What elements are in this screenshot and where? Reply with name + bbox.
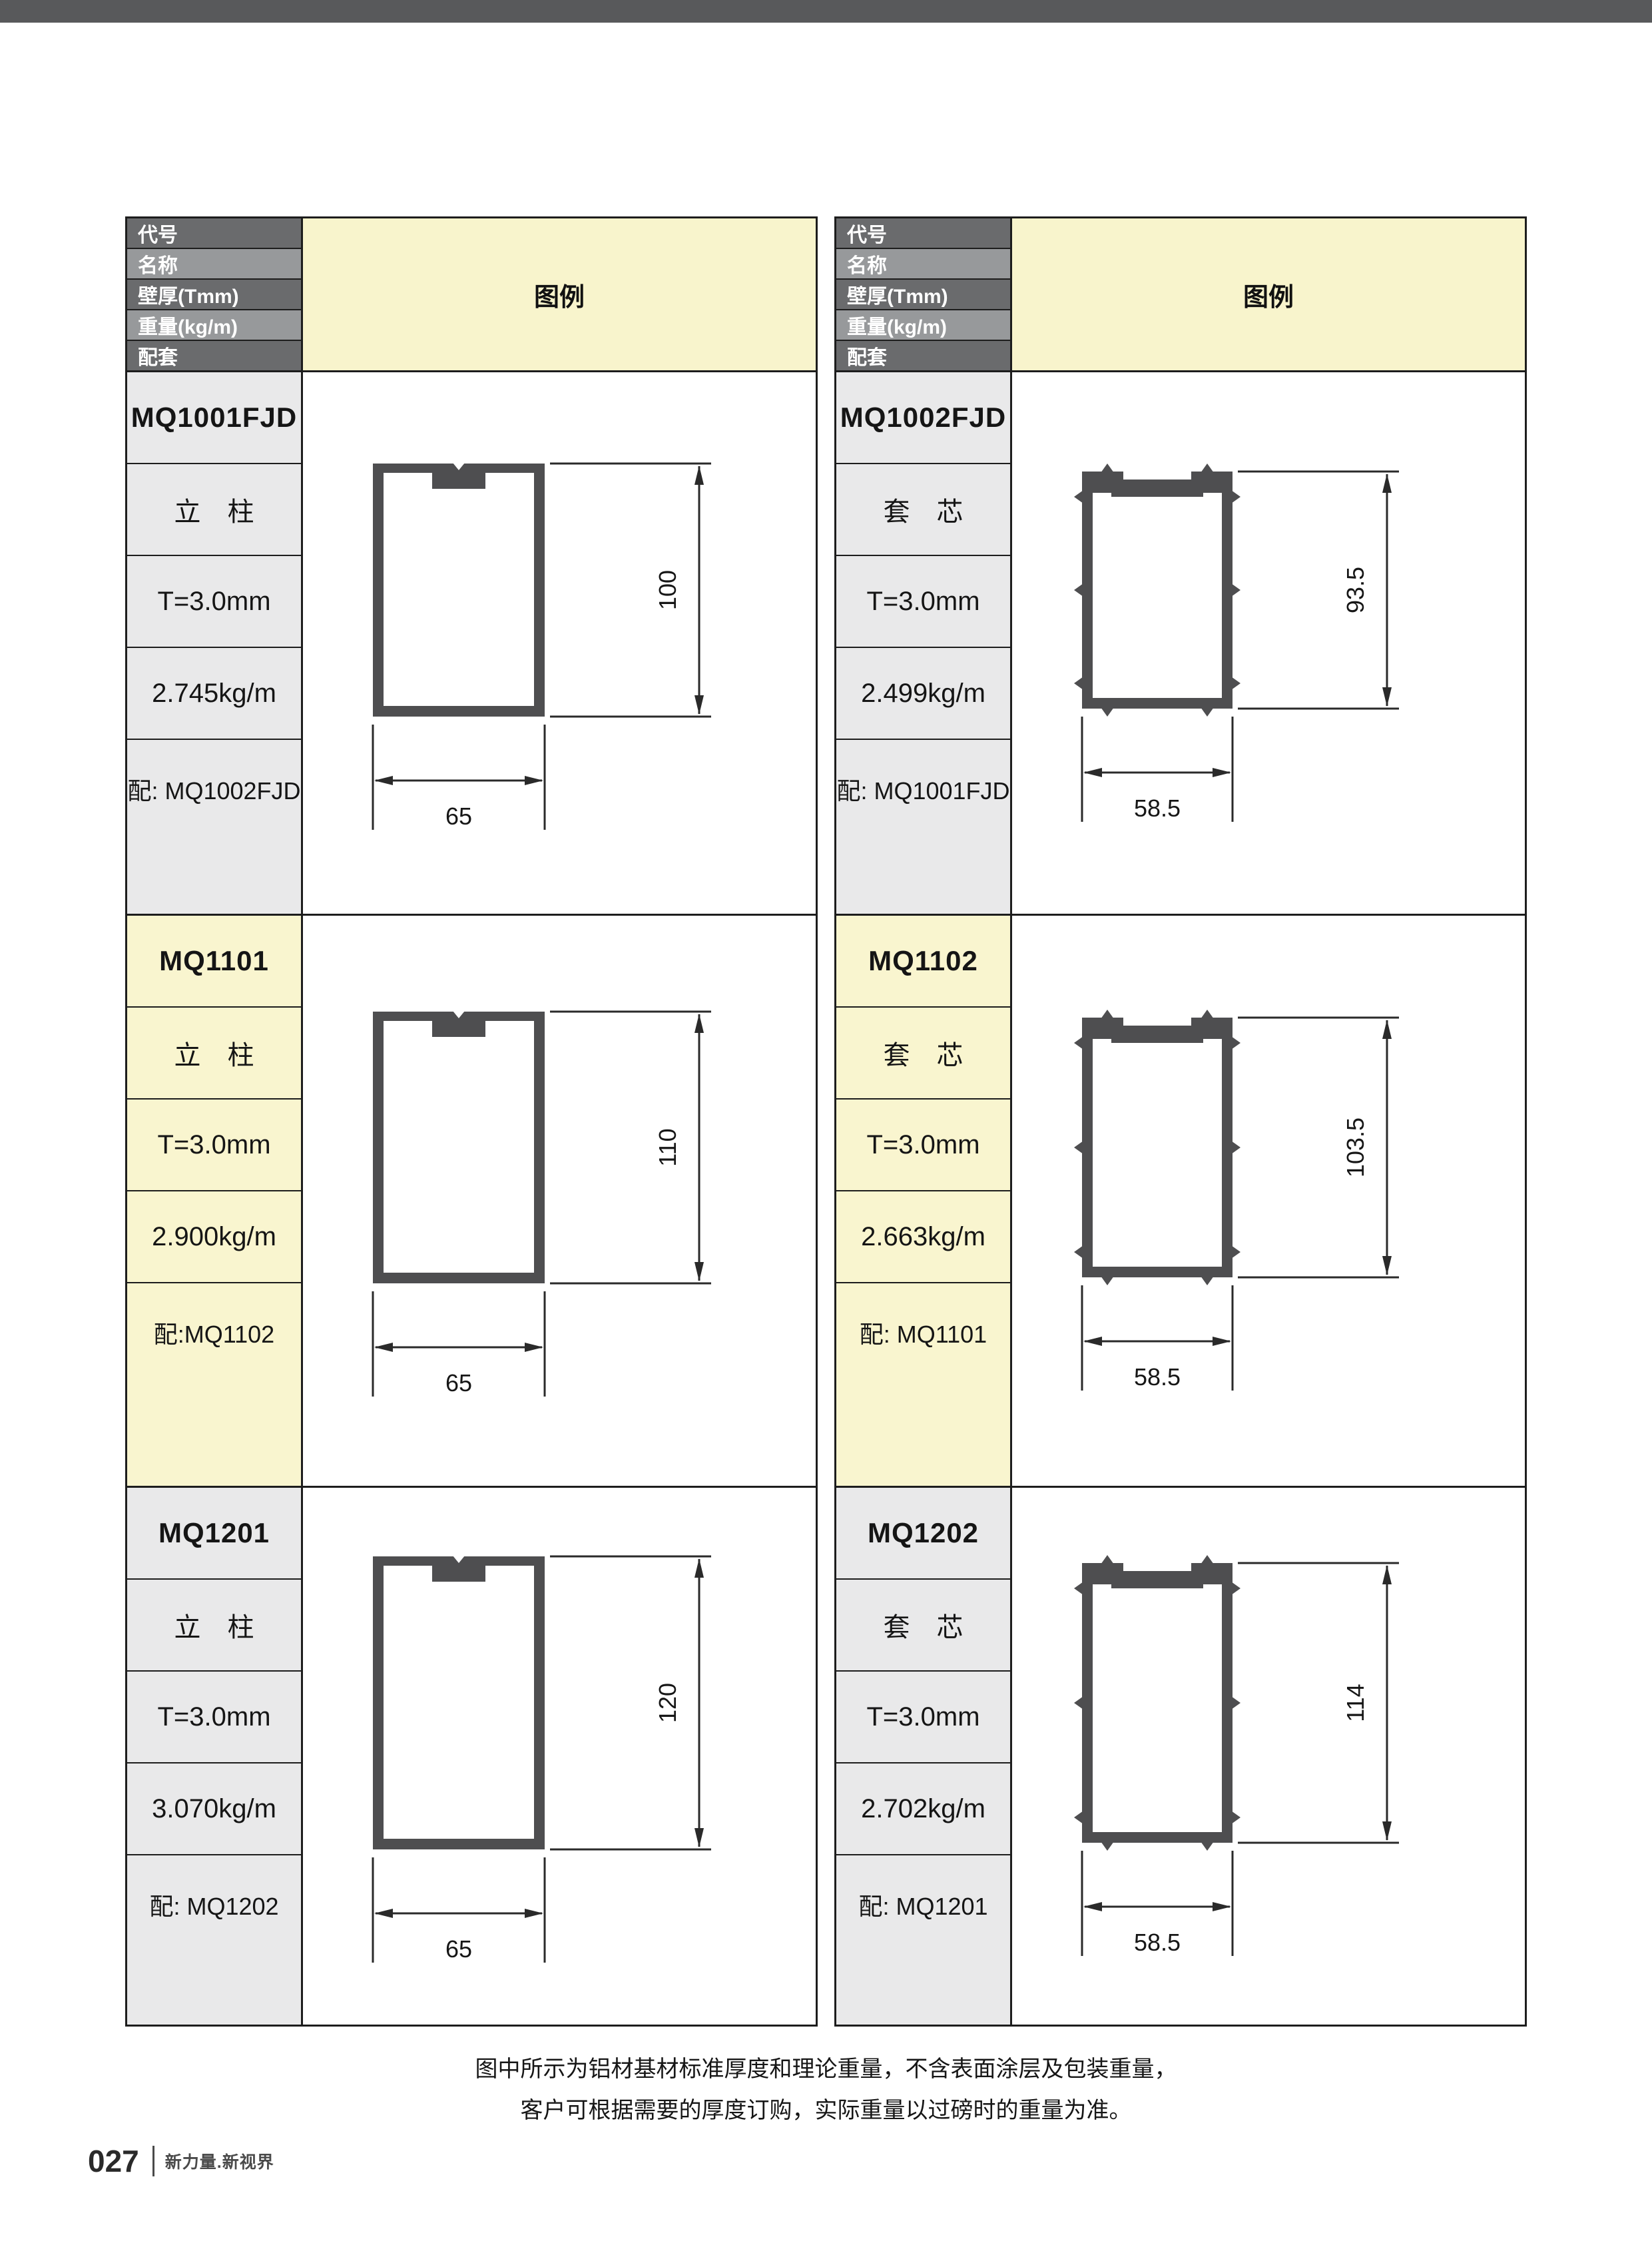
footnote-line-2: 客户可根据需要的厚度订购，实际重量以过磅时的重量为准。 <box>0 2090 1652 2131</box>
product-weight: 2.702kg/m <box>836 1763 1010 1855</box>
header-row-name: 名称 <box>127 249 301 280</box>
product-code: MQ1002FJD <box>836 372 1010 464</box>
width-dimension: 65 <box>445 802 472 830</box>
profile-diagram-mullion: 110 65 <box>360 998 718 1403</box>
width-dimension: 58.5 <box>1134 1363 1181 1391</box>
height-dimension: 93.5 <box>1342 566 1369 613</box>
page-top-bar <box>0 0 1652 23</box>
product-name: 套 芯 <box>836 1008 1010 1100</box>
catalog-page: 代号 名称 壁厚(Tmm) 重量(kg/m) 配套 图例 MQ1001FJD 立… <box>0 0 1652 2241</box>
header-row-match: 配套 <box>127 341 301 370</box>
dimension-lines: 93.5 58.5 <box>1082 472 1399 822</box>
footer-brand-slogan: 新力量.新视界 <box>165 2149 274 2173</box>
height-dimension: 100 <box>654 569 681 609</box>
dimension-lines: 114 58.5 <box>1082 1563 1399 1956</box>
header-row-thickness: 壁厚(Tmm) <box>127 280 301 310</box>
profile-shape <box>373 463 545 717</box>
width-dimension: 58.5 <box>1134 1929 1181 1956</box>
product-labels: MQ1201 立 柱 T=3.0mm 3.070kg/m 配: MQ1202 <box>127 1488 303 2025</box>
header-row-thickness: 壁厚(Tmm) <box>836 280 1010 310</box>
product-match: 配: MQ1001FJD <box>836 740 1010 914</box>
width-dimension: 65 <box>445 1935 472 1963</box>
diagram-cell: 120 65 <box>303 1488 816 2025</box>
product-match: 配: MQ1002FJD <box>127 740 301 914</box>
product-thickness: T=3.0mm <box>836 556 1010 648</box>
diagram-cell: 110 65 <box>303 916 816 1486</box>
height-dimension: 110 <box>654 1128 681 1166</box>
product-row: MQ1102 套 芯 T=3.0mm 2.663kg/m 配: MQ1101 <box>836 916 1525 1488</box>
product-labels: MQ1202 套 芯 T=3.0mm 2.702kg/m 配: MQ1201 <box>836 1488 1012 2025</box>
width-dimension: 58.5 <box>1134 795 1181 822</box>
product-weight: 2.499kg/m <box>836 648 1010 740</box>
product-code: MQ1201 <box>127 1488 301 1580</box>
product-code: MQ1101 <box>127 916 301 1008</box>
product-row: MQ1002FJD 套 芯 T=3.0mm 2.499kg/m 配: MQ100… <box>836 372 1525 916</box>
product-row: MQ1001FJD 立 柱 T=3.0mm 2.745kg/m 配: MQ100… <box>127 372 816 916</box>
header-label-column: 代号 名称 壁厚(Tmm) 重量(kg/m) 配套 <box>127 218 303 370</box>
product-labels: MQ1002FJD 套 芯 T=3.0mm 2.499kg/m 配: MQ100… <box>836 372 1012 914</box>
product-weight: 2.663kg/m <box>836 1191 1010 1283</box>
header-label-column: 代号 名称 壁厚(Tmm) 重量(kg/m) 配套 <box>836 218 1012 370</box>
dimension-lines: 103.5 58.5 <box>1082 1018 1399 1391</box>
header-row-weight: 重量(kg/m) <box>836 310 1010 341</box>
product-weight: 2.745kg/m <box>127 648 301 740</box>
product-code: MQ1001FJD <box>127 372 301 464</box>
product-table-left: 代号 名称 壁厚(Tmm) 重量(kg/m) 配套 图例 MQ1001FJD 立… <box>125 216 818 2027</box>
product-weight: 3.070kg/m <box>127 1763 301 1855</box>
table-header: 代号 名称 壁厚(Tmm) 重量(kg/m) 配套 图例 <box>127 218 816 372</box>
profile-diagram-core: 114 58.5 <box>1069 1550 1406 1963</box>
height-dimension: 114 <box>1342 1684 1369 1722</box>
profile-shape <box>373 1556 545 1849</box>
product-match: 配:MQ1102 <box>127 1283 301 1486</box>
profile-diagram-mullion: 120 65 <box>360 1543 718 1969</box>
height-dimension: 103.5 <box>1342 1118 1369 1177</box>
product-match: 配: MQ1201 <box>836 1855 1010 2025</box>
profile-shape <box>1074 1555 1240 1851</box>
product-row: MQ1101 立 柱 T=3.0mm 2.900kg/m 配:MQ1102 <box>127 916 816 1488</box>
product-thickness: T=3.0mm <box>127 556 301 648</box>
header-row-name: 名称 <box>836 249 1010 280</box>
diagram-cell: 114 58.5 <box>1012 1488 1525 2025</box>
diagram-cell: 93.5 58.5 <box>1012 372 1525 914</box>
product-name: 套 芯 <box>836 464 1010 556</box>
table-header: 代号 名称 壁厚(Tmm) 重量(kg/m) 配套 图例 <box>836 218 1525 372</box>
profile-shape <box>1074 1010 1240 1285</box>
product-thickness: T=3.0mm <box>836 1100 1010 1191</box>
product-weight: 2.900kg/m <box>127 1191 301 1283</box>
footnote-line-1: 图中所示为铝材基材标准厚度和理论重量，不含表面涂层及包装重量， <box>0 2049 1652 2090</box>
profile-diagram-core: 93.5 58.5 <box>1069 458 1406 828</box>
footer-divider <box>152 2146 154 2176</box>
product-match: 配: MQ1202 <box>127 1855 301 2025</box>
product-thickness: T=3.0mm <box>836 1672 1010 1763</box>
profile-shape <box>373 1011 545 1283</box>
product-thickness: T=3.0mm <box>127 1672 301 1763</box>
product-code: MQ1202 <box>836 1488 1010 1580</box>
product-match: 配: MQ1101 <box>836 1283 1010 1486</box>
page-footer: 027 新力量.新视界 <box>88 2143 274 2179</box>
product-row: MQ1202 套 芯 T=3.0mm 2.702kg/m 配: MQ1201 <box>836 1488 1525 2025</box>
header-row-code: 代号 <box>836 218 1010 249</box>
product-code: MQ1102 <box>836 916 1010 1008</box>
footnote: 图中所示为铝材基材标准厚度和理论重量，不含表面涂层及包装重量， 客户可根据需要的… <box>0 2049 1652 2131</box>
header-row-code: 代号 <box>127 218 301 249</box>
product-name: 套 芯 <box>836 1580 1010 1672</box>
profile-diagram-mullion: 100 65 <box>360 450 718 836</box>
height-dimension: 120 <box>654 1683 681 1723</box>
page-number: 027 <box>88 2143 139 2179</box>
header-row-match: 配套 <box>836 341 1010 370</box>
product-thickness: T=3.0mm <box>127 1100 301 1191</box>
product-labels: MQ1001FJD 立 柱 T=3.0mm 2.745kg/m 配: MQ100… <box>127 372 303 914</box>
header-row-weight: 重量(kg/m) <box>127 310 301 341</box>
profile-diagram-core: 103.5 58.5 <box>1069 1004 1406 1397</box>
diagram-cell: 103.5 58.5 <box>1012 916 1525 1486</box>
product-name: 立 柱 <box>127 464 301 556</box>
product-table-right: 代号 名称 壁厚(Tmm) 重量(kg/m) 配套 图例 MQ1002FJD 套… <box>834 216 1527 2027</box>
product-name: 立 柱 <box>127 1008 301 1100</box>
product-labels: MQ1101 立 柱 T=3.0mm 2.900kg/m 配:MQ1102 <box>127 916 303 1486</box>
header-legend-cell: 图例 <box>303 218 816 370</box>
product-labels: MQ1102 套 芯 T=3.0mm 2.663kg/m 配: MQ1101 <box>836 916 1012 1486</box>
width-dimension: 65 <box>445 1369 472 1397</box>
diagram-cell: 100 65 <box>303 372 816 914</box>
product-name: 立 柱 <box>127 1580 301 1672</box>
profile-shape <box>1074 464 1240 717</box>
product-row: MQ1201 立 柱 T=3.0mm 3.070kg/m 配: MQ1202 <box>127 1488 816 2025</box>
header-legend-cell: 图例 <box>1012 218 1525 370</box>
